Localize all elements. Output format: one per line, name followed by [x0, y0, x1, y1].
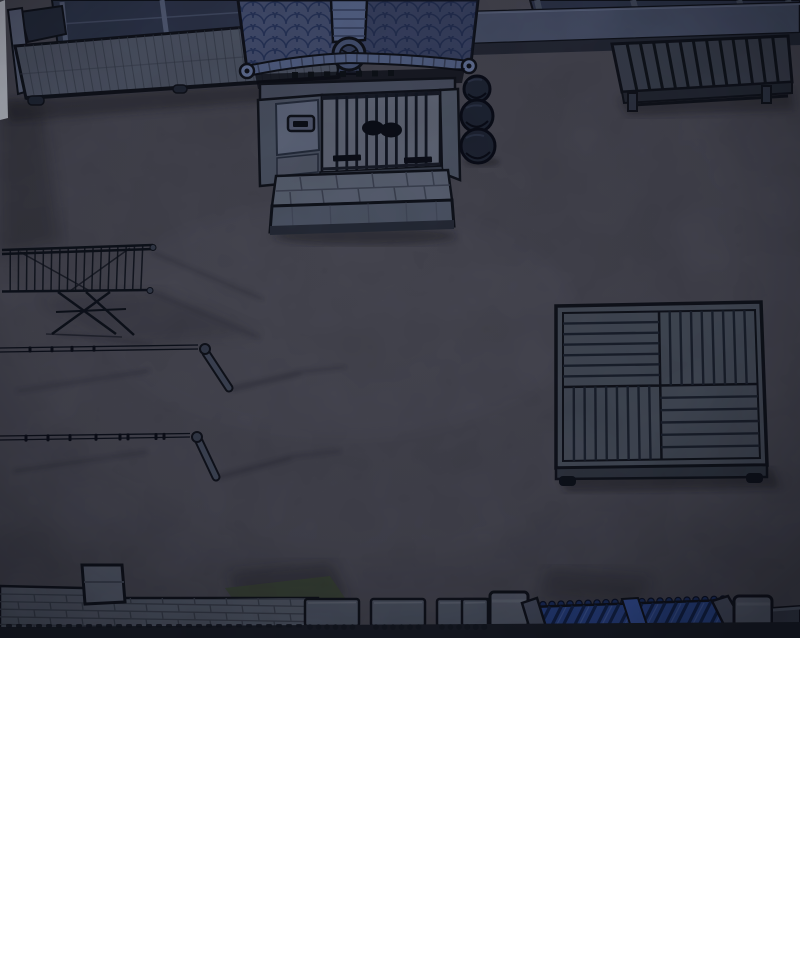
grain-texture: [0, 0, 800, 638]
courtyard-panel: Overhead night view of a traditional Kor…: [0, 0, 800, 974]
webtoon-page: Overhead night view of a traditional Kor…: [0, 0, 800, 974]
panel-figure: Overhead night view of a traditional Kor…: [0, 0, 800, 974]
